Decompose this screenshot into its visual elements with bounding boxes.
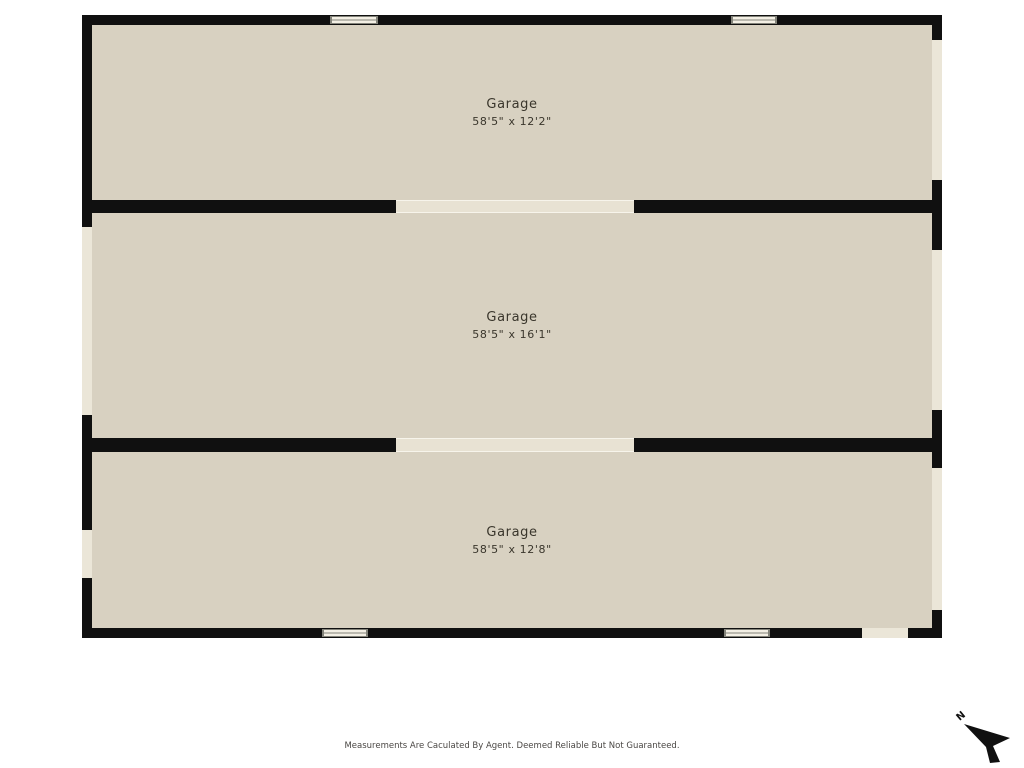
disclaimer-text: Measurements Are Caculated By Agent. Dee… (0, 741, 1024, 751)
opening-right-top-room (932, 40, 942, 180)
opening-bottom-right (862, 628, 908, 638)
room-dimensions: 58'5" x 16'1" (472, 328, 551, 341)
room-name: Garage (486, 525, 537, 540)
opening-divider-2 (396, 438, 634, 452)
opening-left-bottom-room (82, 530, 92, 578)
window-symbol-bottom-left (322, 629, 368, 637)
room-garage-3: Garage 58'5" x 12'8" (92, 452, 932, 628)
room-name: Garage (486, 310, 537, 325)
opening-divider-1 (396, 200, 634, 213)
room-garage-1: Garage 58'5" x 12'2" (92, 25, 932, 200)
wall-top (82, 15, 942, 25)
opening-right-bottom-room (932, 468, 942, 610)
room-name: Garage (486, 97, 537, 112)
opening-right-middle-room (932, 250, 942, 410)
opening-left-middle-room (82, 227, 92, 415)
room-dimensions: 58'5" x 12'8" (472, 543, 551, 556)
window-symbol-bottom-right (724, 629, 770, 637)
north-compass: N (952, 704, 1016, 764)
window-symbol-top-right (731, 16, 777, 24)
room-dimensions: 58'5" x 12'2" (472, 115, 551, 128)
north-arrow-icon (960, 716, 1012, 764)
floorplan-canvas: Garage 58'5" x 12'2" Garage 58'5" x 16'1… (0, 0, 1024, 768)
window-symbol-top-left (330, 16, 378, 24)
wall-bottom (82, 628, 942, 638)
room-garage-2: Garage 58'5" x 16'1" (92, 213, 932, 438)
